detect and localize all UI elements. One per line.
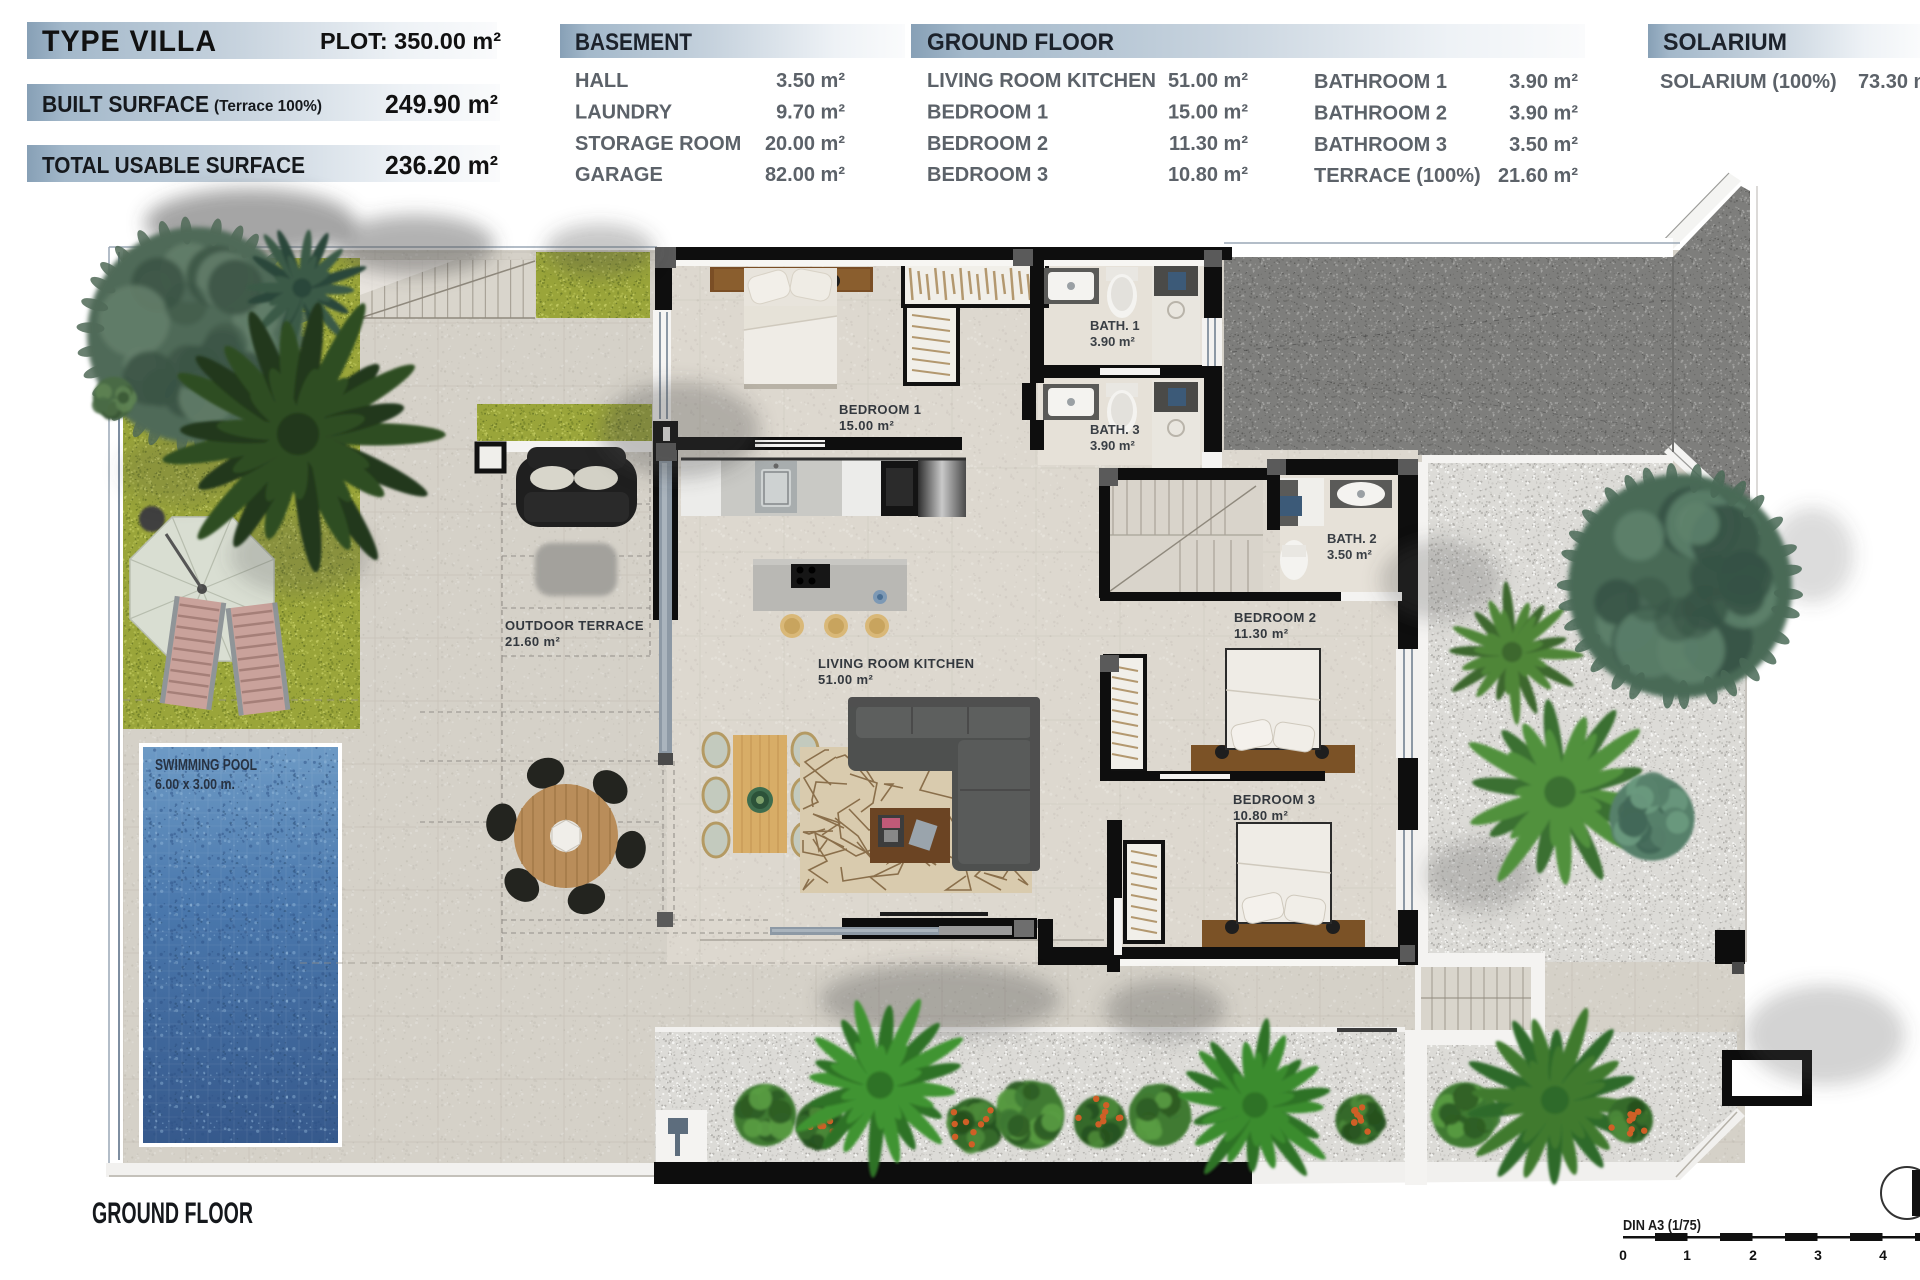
svg-text:3.50 m²: 3.50 m²	[1509, 134, 1578, 156]
svg-text:BEDROOM 1: BEDROOM 1	[839, 402, 921, 417]
svg-text:STORAGE ROOM: STORAGE ROOM	[575, 133, 741, 155]
svg-text:20.00 m²: 20.00 m²	[765, 133, 845, 155]
svg-text:51.00 m²: 51.00 m²	[1168, 70, 1248, 92]
svg-text:TERRACE (100%): TERRACE (100%)	[1314, 165, 1481, 187]
svg-text:SOLARIUM: SOLARIUM	[1663, 29, 1787, 56]
svg-text:SWIMMING POOL: SWIMMING POOL	[155, 757, 257, 774]
svg-text:GROUND FLOOR: GROUND FLOOR	[927, 29, 1114, 56]
svg-text:15.00 m²: 15.00 m²	[839, 418, 895, 433]
svg-text:82.00 m²: 82.00 m²	[765, 164, 845, 186]
svg-text:BATHROOM 3: BATHROOM 3	[1314, 134, 1447, 156]
svg-text:PLOT: 350.00 m²: PLOT: 350.00 m²	[320, 28, 501, 54]
svg-text:LAUNDRY: LAUNDRY	[575, 101, 673, 123]
svg-text:BEDROOM 1: BEDROOM 1	[927, 101, 1048, 123]
svg-text:11.30 m²: 11.30 m²	[1169, 133, 1248, 155]
svg-text:SOLARIUM (100%): SOLARIUM (100%)	[1660, 71, 1837, 93]
svg-text:4: 4	[1879, 1247, 1887, 1263]
svg-text:1: 1	[1683, 1247, 1691, 1263]
svg-text:DIN A3 (1/75): DIN A3 (1/75)	[1623, 1217, 1701, 1234]
svg-text:TYPE VILLA: TYPE VILLA	[42, 25, 217, 58]
svg-text:6.00 x 3.00 m.: 6.00 x 3.00 m.	[155, 776, 235, 793]
svg-text:3: 3	[1814, 1247, 1822, 1263]
svg-text:BATH. 1: BATH. 1	[1090, 318, 1140, 333]
svg-text:BUILT SURFACE: BUILT SURFACE	[42, 91, 209, 117]
svg-text:51.00 m²: 51.00 m²	[818, 672, 874, 687]
svg-text:21.60 m²: 21.60 m²	[1498, 165, 1578, 187]
svg-text:LIVING ROOM KITCHEN: LIVING ROOM KITCHEN	[927, 70, 1156, 92]
svg-text:BEDROOM 2: BEDROOM 2	[927, 133, 1048, 155]
svg-text:11.30 m²: 11.30 m²	[1234, 626, 1289, 641]
svg-text:BEDROOM 3: BEDROOM 3	[927, 164, 1048, 186]
svg-text:BATHROOM 1: BATHROOM 1	[1314, 71, 1447, 93]
svg-text:249.90 m²: 249.90 m²	[385, 89, 498, 119]
svg-text:15.00 m²: 15.00 m²	[1168, 101, 1248, 123]
svg-text:9.70 m²: 9.70 m²	[776, 101, 845, 123]
svg-text:HALL: HALL	[575, 70, 628, 92]
svg-text:(Terrace 100%): (Terrace 100%)	[214, 98, 322, 115]
svg-text:LIVING ROOM KITCHEN: LIVING ROOM KITCHEN	[818, 656, 974, 671]
svg-text:3.50 m²: 3.50 m²	[776, 70, 845, 92]
svg-text:10.80 m²: 10.80 m²	[1168, 164, 1248, 186]
svg-text:OUTDOOR TERRACE: OUTDOOR TERRACE	[505, 618, 644, 633]
svg-text:21.60 m²: 21.60 m²	[505, 634, 561, 649]
svg-text:73.30 m²: 73.30 m²	[1858, 71, 1920, 93]
svg-text:BEDROOM 2: BEDROOM 2	[1234, 610, 1316, 625]
svg-text:3.90 m²: 3.90 m²	[1090, 438, 1135, 453]
svg-text:10.80 m²: 10.80 m²	[1233, 808, 1289, 823]
svg-text:BATHROOM 2: BATHROOM 2	[1314, 102, 1447, 124]
svg-text:TOTAL USABLE SURFACE: TOTAL USABLE SURFACE	[42, 152, 305, 178]
svg-text:BATH. 3: BATH. 3	[1090, 422, 1140, 437]
svg-text:3.50 m²: 3.50 m²	[1327, 547, 1372, 562]
svg-text:3.90 m²: 3.90 m²	[1509, 71, 1578, 93]
svg-text:0: 0	[1619, 1247, 1627, 1263]
svg-text:236.20 m²: 236.20 m²	[385, 150, 498, 180]
svg-text:BASEMENT: BASEMENT	[575, 29, 692, 56]
svg-text:BATH. 2: BATH. 2	[1327, 531, 1377, 546]
svg-text:BEDROOM 3: BEDROOM 3	[1233, 792, 1315, 807]
svg-text:GARAGE: GARAGE	[575, 164, 663, 186]
svg-text:3.90 m²: 3.90 m²	[1090, 334, 1135, 349]
svg-text:2: 2	[1749, 1247, 1757, 1263]
svg-text:GROUND FLOOR: GROUND FLOOR	[92, 1197, 253, 1230]
svg-text:3.90 m²: 3.90 m²	[1509, 102, 1578, 124]
